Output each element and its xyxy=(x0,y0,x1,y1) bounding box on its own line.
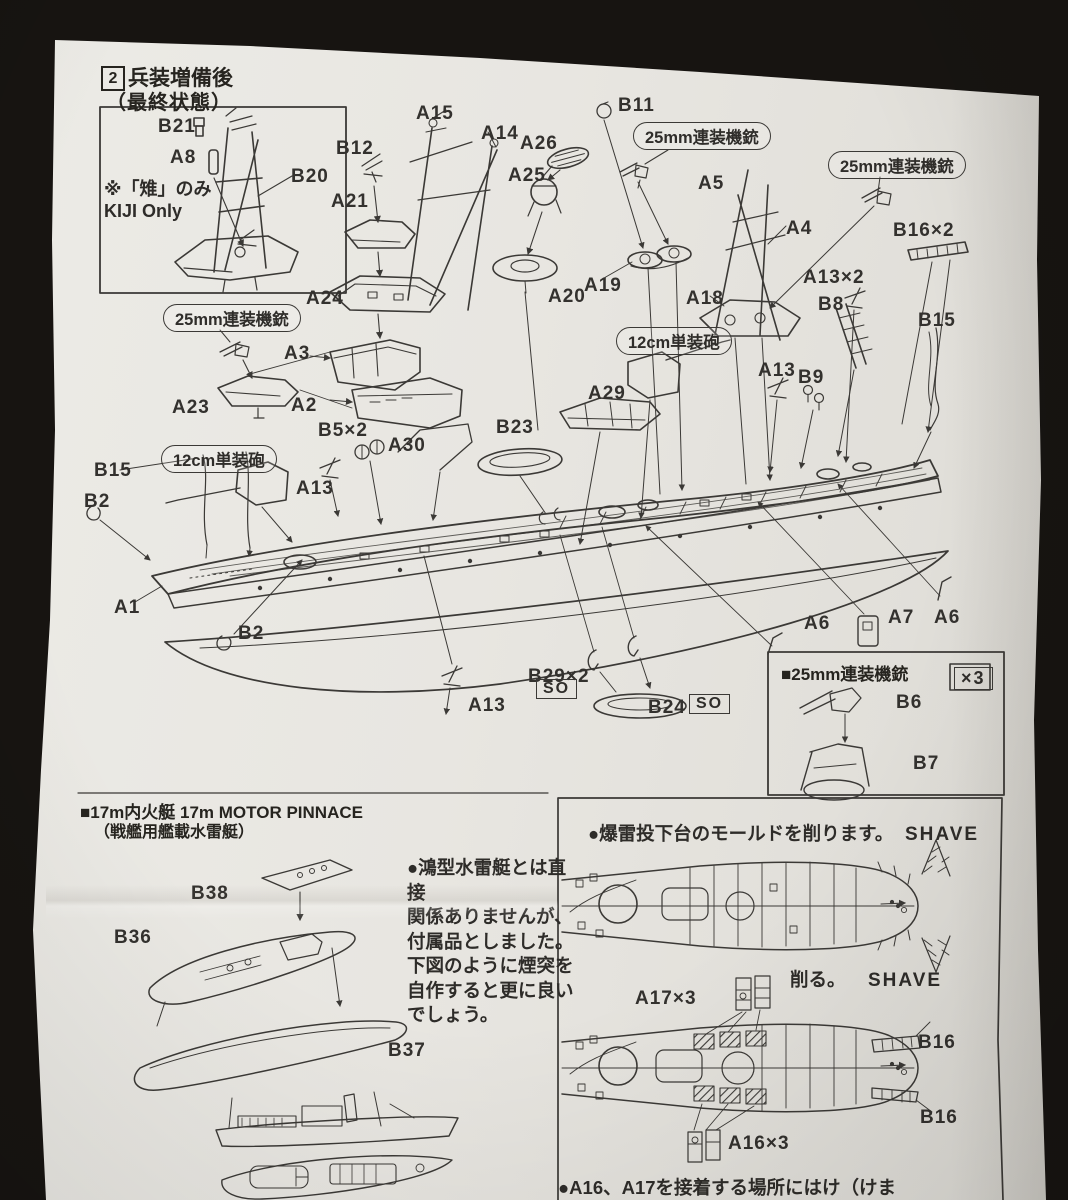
part-label: B16 xyxy=(920,1107,958,1129)
weapon-callout-label: 25mm連装機銃 xyxy=(163,304,301,332)
weapon-callout-label: 12cm単装砲 xyxy=(161,445,277,473)
part-label: A29 xyxy=(588,383,626,405)
part-label: A23 xyxy=(172,397,210,419)
part-label: B21 xyxy=(158,116,196,138)
shave-label-top: SHAVE xyxy=(905,824,979,846)
part-label: B11 xyxy=(618,95,655,117)
part-label: A14 xyxy=(481,123,519,145)
part-label: B38 xyxy=(191,883,229,905)
part-label: B16×2 xyxy=(893,220,955,242)
part-label: A3 xyxy=(284,343,310,365)
part-label: B9 xyxy=(798,367,824,389)
part-label: A13 xyxy=(758,360,796,382)
part-label: A13 xyxy=(468,695,506,717)
part-label: A5 xyxy=(698,173,724,195)
so-runner-badge: SO xyxy=(536,679,577,699)
part-label: A19 xyxy=(584,275,622,297)
part-label: A24 xyxy=(306,288,344,310)
pinnace-note: ●鴻型水雷艇とは直接 関係ありませんが、 付属品としました。 下図のように煙突を… xyxy=(407,856,575,1028)
part-label: B2 xyxy=(238,623,264,645)
part-label: B7 xyxy=(913,753,939,775)
bridge-structure-parts xyxy=(218,330,462,428)
part-label: A13×2 xyxy=(803,267,865,289)
part-label: A16×3 xyxy=(728,1133,790,1155)
box-25mm-title: ■25mm連装機銃 xyxy=(781,660,908,685)
shave-instruction: ●爆雷投下台のモールドを削ります。 xyxy=(588,822,893,847)
a16-a17-note-truncated: ●A16、A17を接着する場所にはけ（けま xyxy=(558,1176,896,1200)
part-label: B23 xyxy=(496,417,534,439)
part-label: A21 xyxy=(331,191,369,213)
part-label: B6 xyxy=(896,692,922,714)
weapon-callout-label: 25mm連装機銃 xyxy=(633,122,771,150)
part-label: B15 xyxy=(918,310,956,332)
part-label: B16 xyxy=(918,1032,956,1054)
multiplier-x3-box: ×3 xyxy=(954,667,993,690)
part-label: B15 xyxy=(94,460,132,482)
part-label: B2 xyxy=(84,491,110,513)
part-label: A25 xyxy=(508,165,546,187)
part-label: A2 xyxy=(291,395,317,417)
part-label: A15 xyxy=(416,103,454,125)
part-label: A6 xyxy=(804,613,830,635)
part-label: A7 xyxy=(888,607,914,629)
part-label: A26 xyxy=(520,133,558,155)
shave-label-bottom: SHAVE xyxy=(868,970,942,992)
part-label: A17×3 xyxy=(635,988,697,1010)
part-label: A4 xyxy=(786,218,812,240)
kiji-only-note: ※「雉」のみ KIJI Only xyxy=(104,178,212,222)
paper-sheet: 2兵装増備後 （最終状態） ※「雉」のみ KIJI Only B21A8B20B… xyxy=(0,0,1068,1200)
part-label: B12 xyxy=(336,138,374,160)
part-label: A6 xyxy=(934,607,960,629)
part-label: B5×2 xyxy=(318,420,368,442)
part-label: B20 xyxy=(291,166,329,188)
part-label: A8 xyxy=(170,147,196,169)
cut-label: 削る。 xyxy=(790,968,846,993)
section-subtitle: （最終状態） xyxy=(106,86,232,115)
weapon-callout-label: 12cm単装砲 xyxy=(616,327,732,355)
weapon-callout-label: 25mm連装機銃 xyxy=(828,151,966,179)
so-runner-badge: SO xyxy=(689,694,730,714)
part-label: B37 xyxy=(388,1040,426,1062)
part-label: B8 xyxy=(818,294,844,316)
photo-of-instruction-sheet: 2兵装増備後 （最終状態） ※「雉」のみ KIJI Only B21A8B20B… xyxy=(0,0,1068,1200)
part-label: A1 xyxy=(114,597,140,619)
part-label: A13 xyxy=(296,478,334,500)
part-label: B36 xyxy=(114,927,152,949)
part-label: A20 xyxy=(548,286,586,308)
part-label: A30 xyxy=(388,435,426,457)
midship-fittings xyxy=(166,340,730,544)
part-label: A18 xyxy=(686,288,724,310)
pinnace-subtitle: （戦艦用艦載水雷艇） xyxy=(94,818,254,842)
part-label: B24 xyxy=(648,697,686,719)
